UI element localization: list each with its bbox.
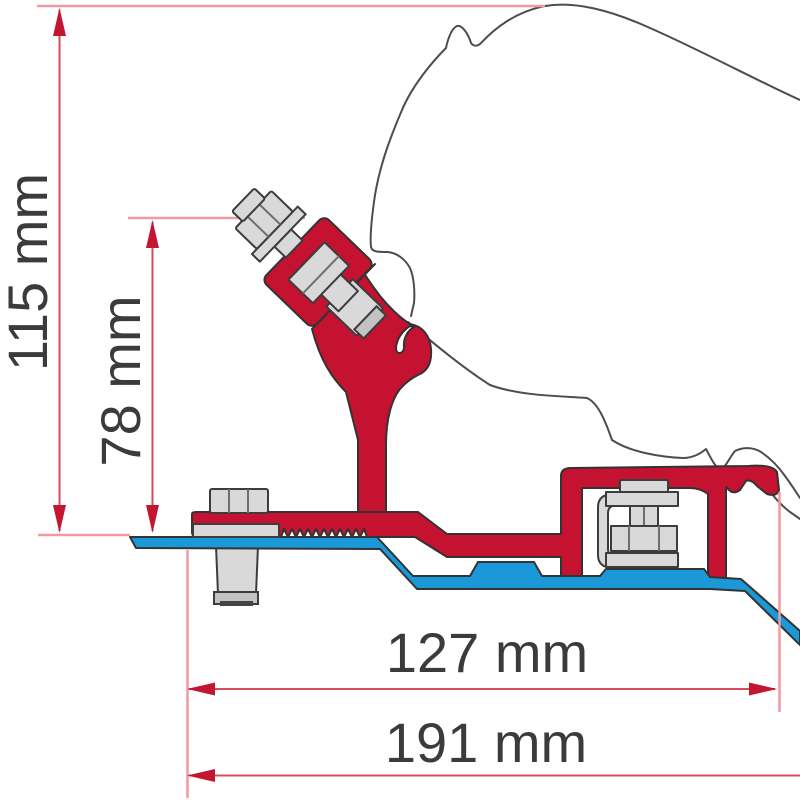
arrow-up-115: [53, 8, 66, 36]
vehicle-outline: [371, 5, 800, 519]
base-bolt-lower: [214, 546, 258, 606]
dimension-191: 191 mm: [187, 711, 800, 782]
dimension-label-191: 191 mm: [385, 711, 587, 774]
arrow-left-191: [187, 769, 215, 782]
rail-bolt-cap: [620, 480, 668, 492]
base-bolt-sleeve: [216, 546, 258, 594]
arrow-right-127: [749, 683, 777, 696]
bracket-upper-section: [212, 167, 431, 512]
dimension-label-115: 115 mm: [0, 173, 59, 371]
base-bolt-hex-head: [210, 489, 268, 513]
dimension-78: 78 mm: [89, 220, 159, 533]
arrow-down-115: [53, 505, 66, 533]
bracket-cross-section-diagram: 115 mm 78 mm 127 mm 191 mm: [0, 0, 800, 800]
base-bolt-sleeve-band: [220, 601, 253, 606]
arrow-left-127: [187, 683, 215, 696]
dimension-label-78: 78 mm: [89, 295, 152, 466]
awning-case-left-outline: [371, 48, 446, 316]
arrow-down-78: [146, 505, 159, 533]
dimension-115: 115 mm: [0, 8, 66, 533]
rail-bolt-hex-nut: [611, 526, 677, 551]
base-bolt-washer: [193, 524, 279, 537]
rail-bolt-assembly: [598, 480, 678, 582]
rail-bolt-top-plate: [606, 492, 678, 506]
arrow-up-78: [146, 220, 159, 248]
rail-bolt-bottom-plate: [606, 553, 678, 567]
awning-case-top-outline: [446, 5, 800, 100]
diagram-canvas: 115 mm 78 mm 127 mm 191 mm: [0, 0, 800, 800]
dimension-label-127: 127 mm: [386, 621, 588, 684]
